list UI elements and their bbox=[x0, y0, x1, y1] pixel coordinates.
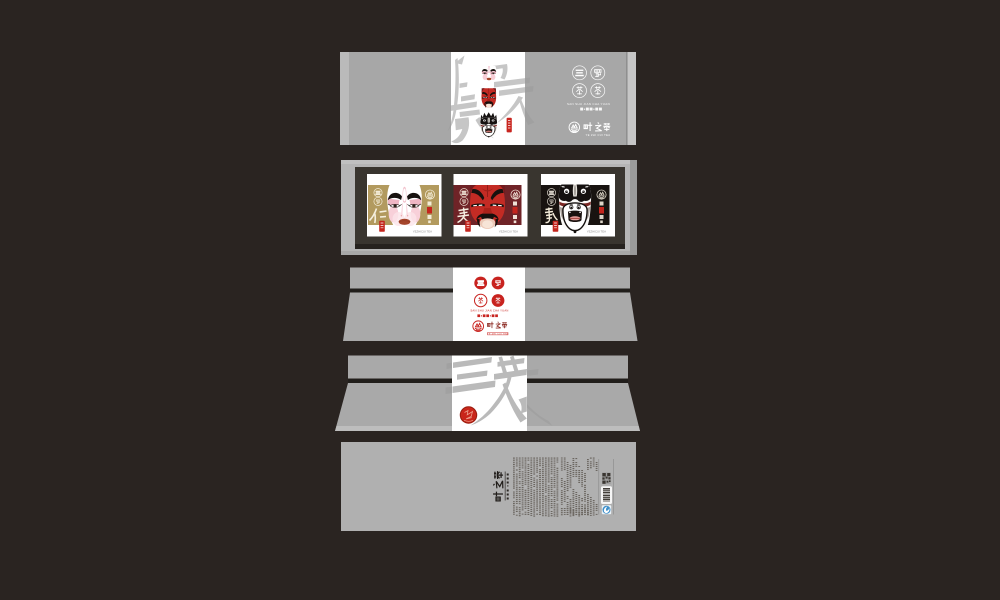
svg-text:YEZHICUI TEA: YEZHICUI TEA bbox=[413, 230, 432, 234]
svg-text:YEZHICUI TEA: YEZHICUI TEA bbox=[499, 230, 518, 234]
svg-text:YE ZHI CUI TEA: YE ZHI CUI TEA bbox=[586, 133, 611, 137]
svg-text:YEZHICUI TEA: YEZHICUI TEA bbox=[587, 230, 606, 234]
svg-text:YE ZHI CUI TEA: YE ZHI CUI TEA bbox=[487, 333, 508, 336]
svg-text:SAN SHU JIAN CHA YUAN: SAN SHU JIAN CHA YUAN bbox=[470, 309, 508, 313]
svg-text:SAN SHU JIAN CHA YUAN: SAN SHU JIAN CHA YUAN bbox=[567, 102, 610, 106]
